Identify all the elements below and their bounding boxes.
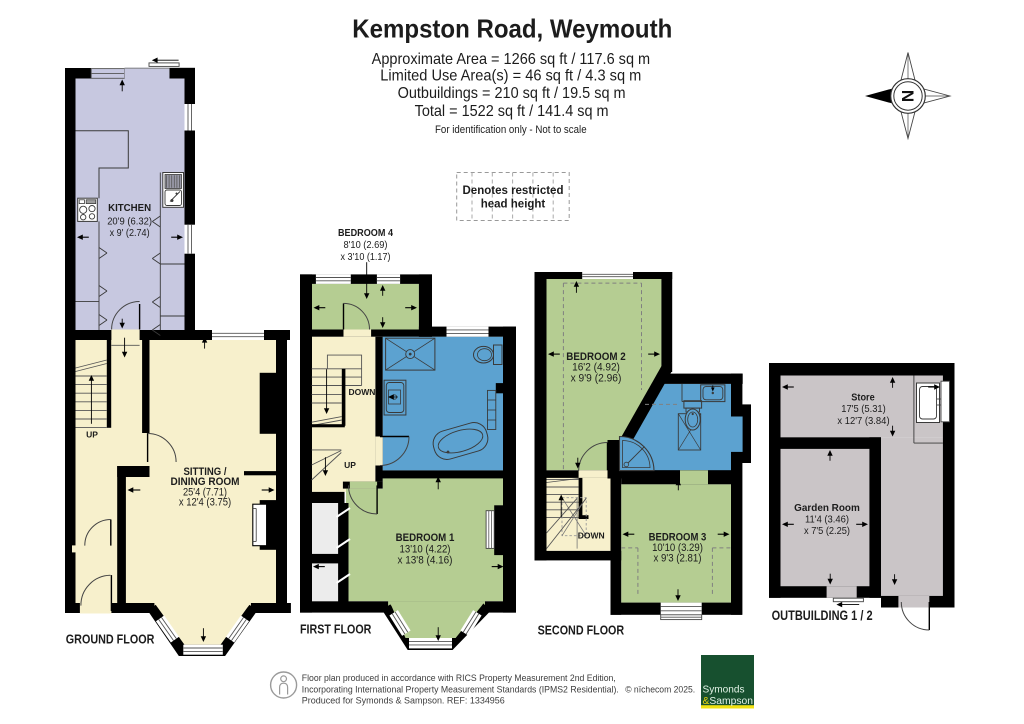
svg-text:Produced for Symonds & Sampson: Produced for Symonds & Sampson. REF: 133… [302,696,505,706]
svg-text:BEDROOM 1: BEDROOM 1 [396,532,455,544]
svg-text:13'10 (4.22): 13'10 (4.22) [400,543,451,555]
svg-text:Total = 1522 sq ft / 141.4 sq: Total = 1522 sq ft / 141.4 sq m [415,103,609,120]
svg-text:© nïchecom 2025.: © nïchecom 2025. [625,684,695,694]
svg-text:Garden Room: Garden Room [794,502,860,514]
svg-text:Limited Use Area(s) = 46 sq ft: Limited Use Area(s) = 46 sq ft / 4.3 sq … [380,68,641,85]
svg-text:Kempston Road, Weymouth: Kempston Road, Weymouth [352,14,672,44]
svg-text:SECOND FLOOR: SECOND FLOOR [538,623,625,638]
svg-text:N: N [899,90,918,102]
svg-text:x 9'9 (2.96): x 9'9 (2.96) [571,372,622,384]
svg-text:x 9' (2.74): x 9' (2.74) [110,227,150,239]
svg-text:x 3'10 (1.17): x 3'10 (1.17) [341,251,391,263]
svg-text:x 7'5 (2.25): x 7'5 (2.25) [804,525,850,537]
svg-text:KITCHEN: KITCHEN [108,202,151,214]
svg-text:20'9 (6.32): 20'9 (6.32) [107,216,152,228]
svg-text:Denotes restricted: Denotes restricted [463,185,564,197]
svg-text:x 9'3 (2.81): x 9'3 (2.81) [654,553,702,565]
svg-text:Symonds: Symonds [703,685,745,696]
svg-text:x 12'7 (3.84): x 12'7 (3.84) [837,415,889,427]
svg-text:For identification only - Not: For identification only - Not to scale [435,124,587,136]
svg-text:Outbuildings = 210 sq ft / 19.: Outbuildings = 210 sq ft / 19.5 sq m [398,85,626,102]
svg-text:OUTBUILDING 1 / 2: OUTBUILDING 1 / 2 [772,608,873,623]
svg-text:x 12'4 (3.75): x 12'4 (3.75) [179,496,231,508]
svg-text:x 13'8 (4.16): x 13'8 (4.16) [398,555,453,567]
svg-text:Store: Store [851,392,875,404]
svg-text:head height: head height [481,199,546,211]
svg-text:DOWN: DOWN [349,387,376,397]
svg-text:DOWN: DOWN [578,531,605,541]
svg-text:UP: UP [86,430,98,440]
svg-text:Approximate Area = 1266 sq ft: Approximate Area = 1266 sq ft / 117.6 sq… [372,51,651,68]
svg-text:17'5 (5.31): 17'5 (5.31) [841,403,886,415]
svg-text:FIRST FLOOR: FIRST FLOOR [300,621,372,636]
svg-text:UP: UP [344,460,356,470]
svg-text:11'4 (3.46): 11'4 (3.46) [805,513,849,525]
svg-text:GROUND FLOOR: GROUND FLOOR [66,632,155,647]
svg-text:BEDROOM 4: BEDROOM 4 [338,227,393,239]
svg-text:&Sampson: &Sampson [703,696,754,707]
svg-text:Floor plan produced in accorda: Floor plan produced in accordance with R… [302,673,616,683]
svg-text:8'10 (2.69): 8'10 (2.69) [344,239,388,251]
svg-text:Incorporating International Pr: Incorporating International Property Mea… [302,684,619,694]
